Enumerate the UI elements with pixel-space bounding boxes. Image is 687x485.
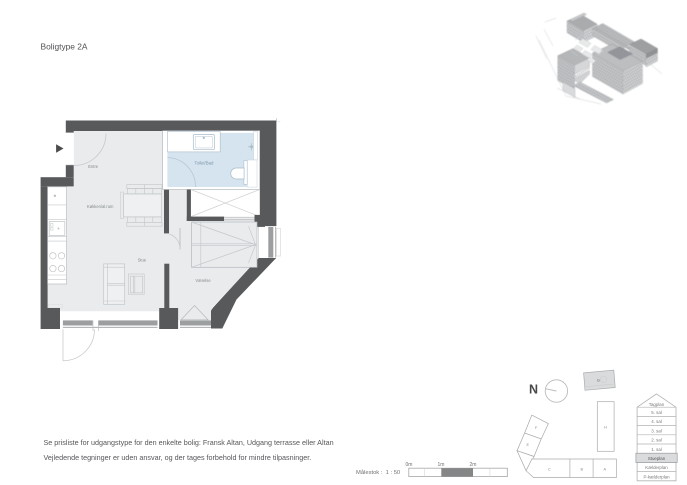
svg-text:0m: 0m — [406, 462, 413, 468]
svg-text:Kælderplan: Kælderplan — [645, 465, 668, 470]
svg-text:H: H — [604, 426, 607, 430]
svg-text:Målestok : 1 : 50: Målestok : 1 : 50 — [356, 469, 400, 476]
svg-text:Værelse: Værelse — [195, 278, 211, 283]
svg-text:C: C — [548, 468, 551, 472]
svg-text:Se prisliste for udgangstype f: Se prisliste for udgangstype for den enk… — [44, 438, 334, 447]
svg-text:3. sal: 3. sal — [651, 428, 662, 433]
svg-text:G: G — [597, 378, 600, 383]
svg-text:2m: 2m — [470, 462, 477, 468]
svg-text:Entre: Entre — [88, 164, 99, 169]
svg-text:1m: 1m — [438, 462, 445, 468]
svg-text:Køkken/al.rum: Køkken/al.rum — [87, 204, 114, 209]
svg-text:Stue: Stue — [138, 258, 147, 263]
svg-text:Tagplan: Tagplan — [649, 402, 665, 407]
svg-text:4. sal: 4. sal — [651, 419, 662, 424]
svg-text:5. sal: 5. sal — [651, 410, 662, 415]
svg-text:Vejledende tegninger er uden a: Vejledende tegninger er uden ansvar, og … — [44, 453, 312, 462]
svg-text:2. sal: 2. sal — [651, 438, 662, 443]
svg-text:Stueplan: Stueplan — [648, 456, 666, 461]
svg-text:Toilet/Bad: Toilet/Bad — [195, 160, 214, 165]
svg-text:P-kælderplan: P-kælderplan — [643, 474, 670, 479]
svg-text:1. sal: 1. sal — [651, 447, 662, 452]
svg-text:N: N — [529, 383, 538, 397]
svg-text:Boligtype 2A: Boligtype 2A — [41, 42, 88, 52]
